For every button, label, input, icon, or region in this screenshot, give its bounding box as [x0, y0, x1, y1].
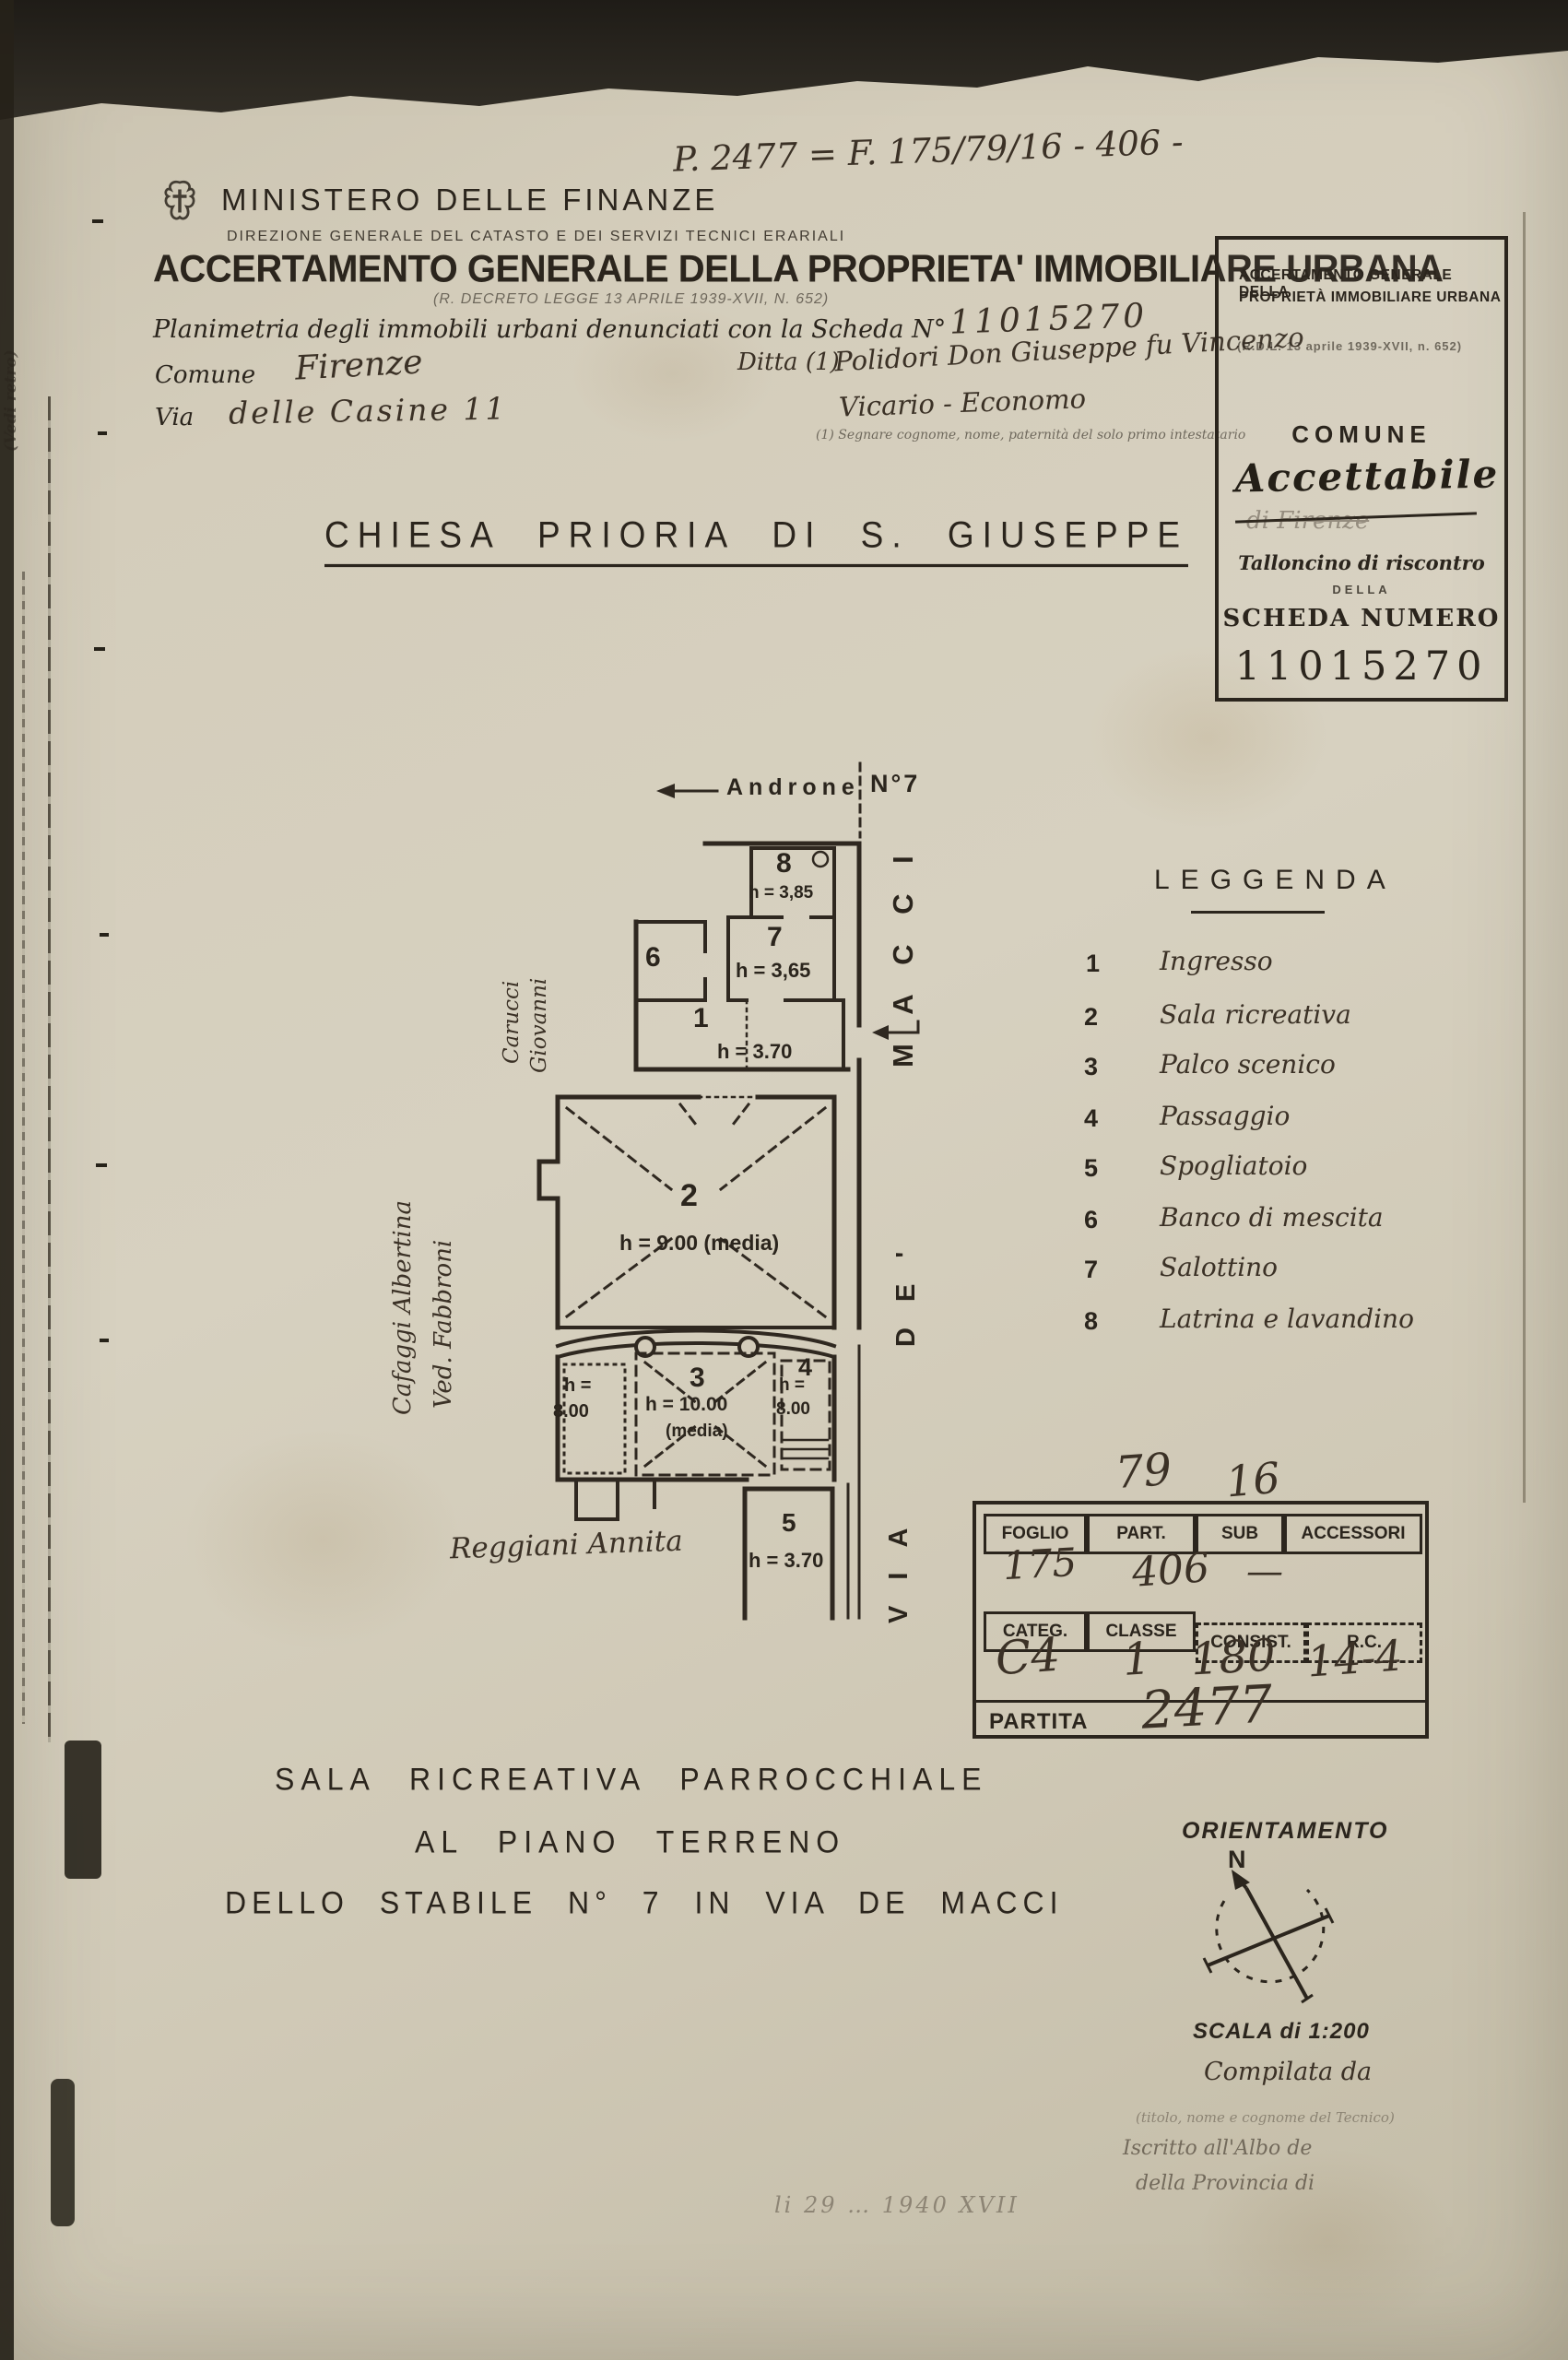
compilation-date: li 29 … 1940 XVII — [774, 2192, 1020, 2218]
paper-stain-2 — [184, 1429, 461, 1650]
room6-number: 6 — [645, 942, 661, 973]
albo-line-1: Iscritto all'Albo de — [1123, 2137, 1312, 2160]
room4-height-value: 8.00 — [776, 1399, 810, 1420]
margin-rule — [48, 396, 51, 1742]
via-label: Via — [155, 404, 194, 431]
street-name-via: V I A — [884, 1519, 914, 1623]
scan-blob-2 — [51, 2079, 75, 2226]
categ-value: C4 — [994, 1628, 1062, 1686]
room3-height: h = 10.00 — [645, 1394, 727, 1416]
room8-number: 8 — [776, 848, 792, 879]
ministry-title: MINISTERO DELLE FINANZE — [221, 183, 718, 218]
classe-value: 1 — [1121, 1633, 1152, 1686]
legend-item-1-label: Ingresso — [1160, 946, 1273, 976]
compass-rose-icon — [1189, 1862, 1346, 2010]
legend-item-4-number: 4 — [1084, 1104, 1098, 1133]
part-value: 406 — [1130, 1544, 1210, 1597]
page-edge-right — [1523, 212, 1526, 1503]
talloncino-comune-label: COMUNE — [1219, 420, 1504, 449]
room7-height: h = 3,65 — [736, 959, 810, 983]
neighbor-cafaggi: Cafaggi Albertina — [389, 1200, 417, 1415]
ditta-label: Ditta (1) — [737, 348, 840, 376]
street-name-de: D E ' — [891, 1243, 922, 1347]
talloncino-decree: (R.D.L. 13 aprile 1939-XVII, n. 652) — [1237, 339, 1462, 353]
ministry-direction: DIREZIONE GENERALE DEL CATASTO E DEI SER… — [227, 229, 845, 245]
room4-height-label: h = — [779, 1375, 805, 1396]
neighbor-carucci: Carucci — [500, 981, 524, 1064]
legend-item-3-label: Palco scenico — [1160, 1049, 1336, 1080]
room5-number: 5 — [782, 1508, 796, 1538]
header-accessori: ACCESSORI — [1284, 1514, 1422, 1554]
property-title: CHIESA PRIORIA DI S. GIUSEPPE — [324, 514, 1188, 567]
legend-item-5-label: Spogliatoio — [1160, 1150, 1307, 1181]
legend-item-7-label: Salottino — [1160, 1252, 1278, 1282]
room1-height: h = 3.70 — [717, 1040, 792, 1064]
scan-tick-6 — [100, 1339, 109, 1342]
legend-item-2-label: Sala ricreativa — [1160, 999, 1351, 1030]
room1-number: 1 — [693, 1003, 709, 1034]
street-name-macci: M A C C I — [887, 844, 920, 1068]
neighbor-fabbroni: Ved. Fabbroni — [430, 1240, 457, 1409]
table-annotation-16: 16 — [1224, 1453, 1282, 1507]
planimetria-label: Planimetria degli immobili urbani denunc… — [153, 315, 946, 344]
room2-height: h = 9.00 (media) — [619, 1231, 779, 1256]
struck-comune-text: di Firenze — [1246, 507, 1369, 535]
via-value: delle Casine 11 — [229, 390, 508, 431]
scale-label: SCALA di 1:200 — [1193, 2019, 1370, 2045]
talloncino-della: DELLA — [1219, 583, 1504, 596]
ditta-value-line2: Vicario - Economo — [838, 383, 1086, 422]
scan-tick-1 — [92, 219, 103, 223]
tecnico-note: (titolo, nome e cognome del Tecnico) — [1136, 2109, 1395, 2126]
legend-item-6-label: Banco di mescita — [1160, 1202, 1384, 1233]
comune-label: Comune — [155, 361, 255, 389]
header-sub: SUB — [1196, 1514, 1284, 1554]
legend-item-5-number: 5 — [1084, 1154, 1098, 1183]
room2-number: 2 — [680, 1178, 698, 1214]
scan-tick-3 — [94, 647, 105, 651]
orientation-title: ORIENTAMENTO — [1182, 1818, 1388, 1845]
civic-number-label: N°7 — [870, 770, 920, 798]
room8-height: h = 3,85 — [749, 883, 813, 903]
comune-stamp: Accettabile — [1224, 451, 1511, 501]
legend-item-7-number: 7 — [1084, 1256, 1098, 1284]
floor-plan-drawing — [516, 756, 922, 1622]
talloncino-box: ACCERTAMENTO GENERALE DELLA PROPRIETÀ IM… — [1215, 236, 1508, 702]
legend-item-4-label: Passaggio — [1160, 1101, 1290, 1131]
foglio-value: 175 — [1002, 1540, 1079, 1588]
legend-title: LEGGENDA — [1154, 865, 1397, 896]
legend-item-3-number: 3 — [1084, 1053, 1098, 1081]
ministry-crest-icon — [157, 177, 203, 234]
sub-value: — — [1246, 1551, 1283, 1593]
scan-top-band — [0, 0, 1568, 124]
legend-item-6-number: 6 — [1084, 1206, 1098, 1234]
albo-line-2: della Provincia di — [1136, 2172, 1315, 2195]
scan-tick-5 — [96, 1163, 107, 1167]
androne-label: Androne — [726, 774, 860, 801]
scan-tick-2 — [98, 431, 107, 435]
ditta-footnote: (1) Segnare cognome, nome, paternità del… — [816, 428, 1245, 442]
handwritten-protocol-annotation: P. 2477 = F. 175/79/16 - 406 - — [672, 122, 1184, 179]
caption-line-3: DELLO STABILE N° 7 IN VIA DE MACCI — [225, 1885, 1063, 1921]
scanned-document-page: (Vedi retro) MINISTERO DELLE FINANZE DIR… — [0, 0, 1568, 2360]
legend-item-1-number: 1 — [1086, 950, 1100, 978]
legend-title-underline — [1191, 911, 1325, 914]
talloncino-title-line2: PROPRIETÀ IMMOBILIARE URBANA — [1239, 289, 1501, 306]
partita-value: 2477 — [1139, 1674, 1274, 1740]
legend-item-2-number: 2 — [1084, 1003, 1098, 1032]
talloncino-riscontro-line: Talloncino di riscontro — [1219, 551, 1504, 574]
margin-script-strip — [22, 572, 25, 1724]
rc-value: 14-4 — [1305, 1630, 1404, 1686]
margin-vedi-retro-note: (Vedi retro) — [2, 349, 20, 452]
scheda-numero-value: 11015270 — [1219, 643, 1504, 690]
scan-tick-4 — [100, 933, 109, 937]
room3-number: 3 — [690, 1363, 705, 1394]
compiled-by-label: Compilata da — [1204, 2058, 1372, 2086]
caption-line-1: SALA RICREATIVA PARROCCHIALE — [275, 1762, 987, 1798]
left-cell-height-value: 8.00 — [553, 1401, 589, 1422]
caption-line-2: AL PIANO TERRENO — [415, 1824, 845, 1860]
decree-line: (R. DECRETO LEGGE 13 APRILE 1939-XVII, N… — [433, 291, 829, 308]
scan-blob-1 — [65, 1740, 101, 1879]
room5-height: h = 3.70 — [749, 1549, 823, 1573]
comune-value: Firenze — [294, 343, 423, 387]
table-annotation-79: 79 — [1114, 1444, 1173, 1499]
partita-label: PARTITA — [989, 1709, 1088, 1735]
left-cell-height-label: h = — [564, 1375, 591, 1397]
legend-item-8-label: Latrina e lavandino — [1160, 1304, 1414, 1334]
scheda-numero-label: SCHEDA NUMERO — [1219, 605, 1504, 632]
room3-height-media: (media) — [666, 1422, 728, 1442]
room7-number: 7 — [767, 922, 783, 953]
androne-arrow — [656, 784, 717, 798]
neighbor-giovanni: Giovanni — [527, 978, 551, 1073]
bottom-stubs — [576, 1480, 654, 1519]
legend-item-8-number: 8 — [1084, 1307, 1098, 1336]
